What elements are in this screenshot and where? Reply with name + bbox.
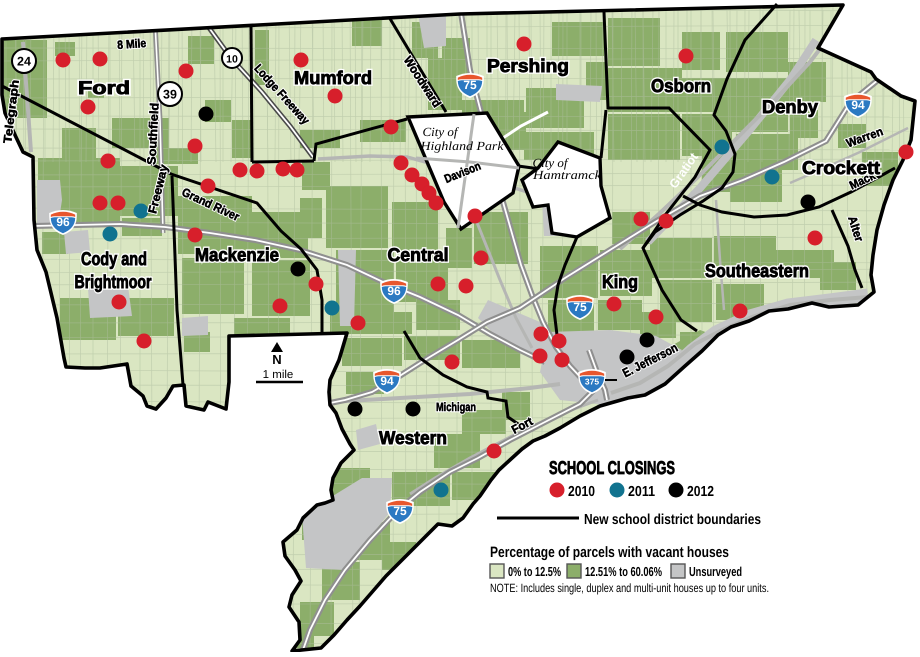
- svg-text:Cody and: Cody and: [81, 248, 147, 269]
- svg-text:Mackenzie: Mackenzie: [195, 244, 279, 265]
- svg-text:NOTE: Includes single, duplex: NOTE: Includes single, duplex and multi-…: [490, 581, 769, 595]
- svg-text:96: 96: [387, 284, 401, 298]
- svg-text:Brightmoor: Brightmoor: [75, 271, 152, 292]
- svg-text:75: 75: [463, 78, 477, 92]
- svg-text:Ford: Ford: [78, 77, 130, 98]
- svg-text:1 mile: 1 mile: [263, 369, 294, 381]
- svg-text:Mumford: Mumford: [294, 67, 372, 88]
- svg-text:8 Mile: 8 Mile: [117, 36, 147, 52]
- svg-text:Central: Central: [388, 244, 449, 265]
- svg-text:39: 39: [163, 88, 177, 102]
- svg-text:96: 96: [56, 215, 70, 229]
- svg-text:Osborn: Osborn: [651, 75, 711, 96]
- svg-text:Highland Park: Highland Park: [419, 139, 504, 153]
- svg-text:Southeastern: Southeastern: [705, 260, 809, 281]
- svg-text:Percentage of parcels with vac: Percentage of parcels with vacant houses: [490, 544, 729, 561]
- svg-text:Unsurveyed: Unsurveyed: [689, 564, 742, 579]
- svg-text:SCHOOL CLOSINGS: SCHOOL CLOSINGS: [549, 457, 675, 478]
- svg-text:2010: 2010: [568, 484, 595, 500]
- svg-text:New school district boundaries: New school district boundaries: [584, 512, 761, 528]
- svg-text:0% to 12.5%: 0% to 12.5%: [508, 564, 561, 579]
- svg-text:375: 375: [585, 377, 599, 387]
- svg-text:12.51% to 60.06%: 12.51% to 60.06%: [585, 564, 662, 579]
- svg-text:Western: Western: [379, 427, 447, 448]
- svg-text:N: N: [272, 352, 281, 367]
- svg-text:Pershing: Pershing: [487, 55, 569, 76]
- svg-text:24: 24: [17, 55, 31, 69]
- svg-text:2011: 2011: [628, 484, 655, 500]
- svg-text:City of: City of: [423, 125, 460, 139]
- svg-text:Michigan: Michigan: [436, 400, 476, 414]
- svg-text:94: 94: [851, 98, 865, 112]
- svg-text:94: 94: [380, 374, 394, 388]
- svg-text:2012: 2012: [687, 484, 714, 500]
- svg-text:Hamtramck: Hamtramck: [532, 168, 602, 182]
- svg-text:75: 75: [573, 300, 587, 314]
- svg-text:Crockett: Crockett: [802, 157, 880, 178]
- svg-text:King: King: [602, 271, 638, 292]
- svg-text:75: 75: [393, 504, 407, 518]
- svg-text:10: 10: [226, 54, 238, 66]
- svg-text:Denby: Denby: [762, 96, 819, 117]
